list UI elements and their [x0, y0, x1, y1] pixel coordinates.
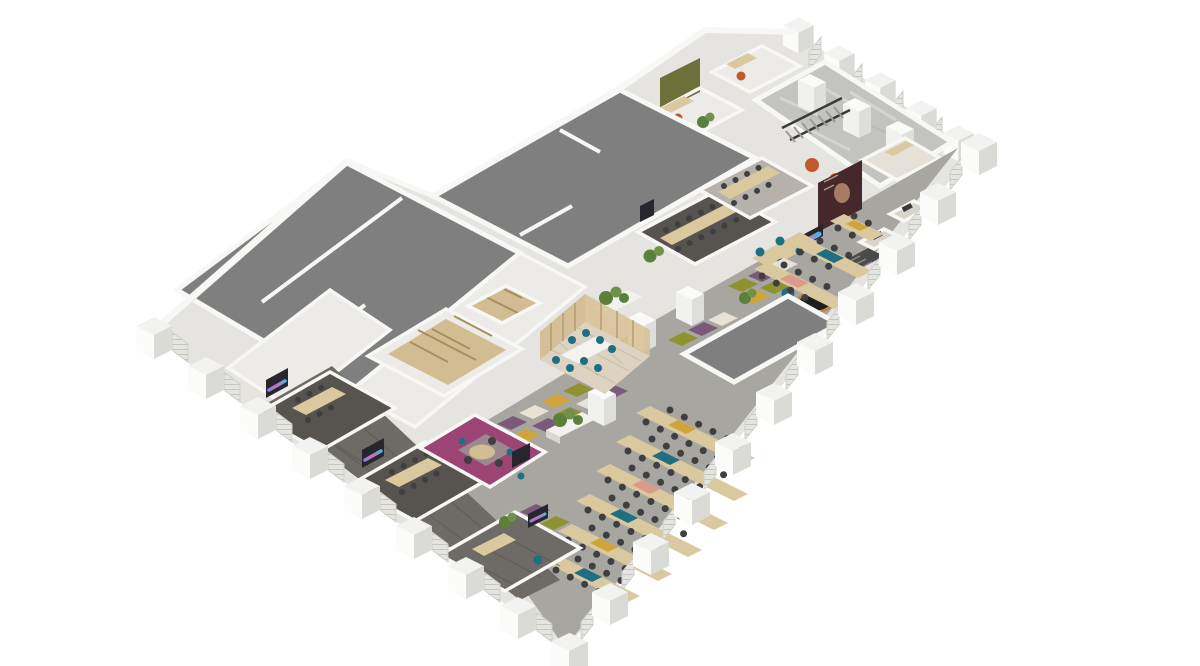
column	[843, 98, 871, 138]
lounge-chair-orange	[805, 158, 819, 172]
orange-chair	[737, 72, 746, 81]
building	[136, 18, 997, 666]
office-floorplan-render	[0, 0, 1200, 666]
floorplan-svg	[0, 0, 1200, 666]
